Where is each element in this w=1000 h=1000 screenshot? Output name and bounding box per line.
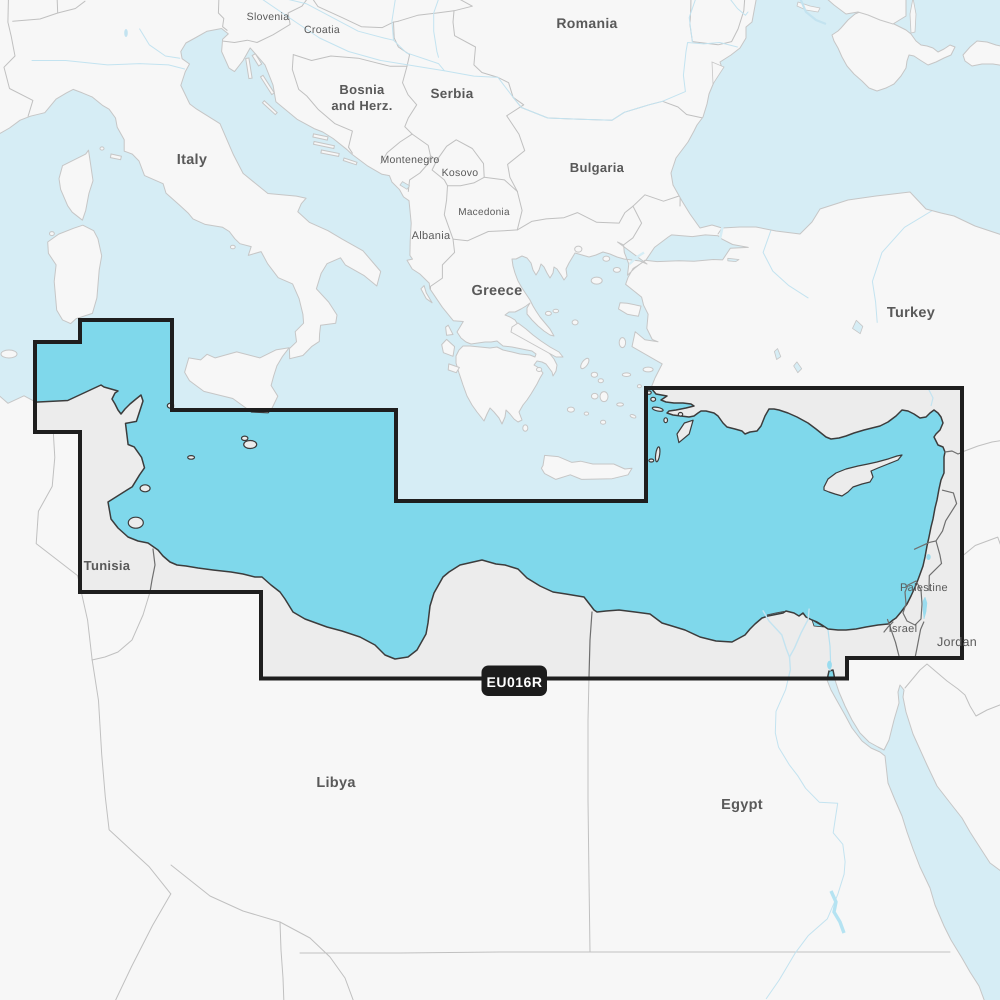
svg-text:Tunisia: Tunisia — [84, 558, 131, 573]
svg-text:Italy: Italy — [177, 152, 208, 168]
svg-text:Slovenia: Slovenia — [247, 11, 290, 23]
svg-text:Albania: Albania — [412, 230, 451, 242]
svg-text:Bosnia: Bosnia — [339, 82, 385, 97]
svg-text:Croatia: Croatia — [304, 24, 340, 36]
svg-text:EU016R: EU016R — [487, 674, 543, 690]
svg-text:Libya: Libya — [316, 775, 356, 791]
svg-text:Kosovo: Kosovo — [442, 167, 479, 179]
svg-text:Palestine: Palestine — [900, 582, 948, 594]
svg-text:Greece: Greece — [472, 283, 523, 299]
svg-text:Bulgaria: Bulgaria — [570, 160, 625, 175]
svg-text:Macedonia: Macedonia — [458, 207, 510, 218]
svg-text:and Herz.: and Herz. — [331, 98, 392, 113]
svg-text:Turkey: Turkey — [887, 305, 935, 321]
svg-text:Montenegro: Montenegro — [380, 154, 439, 166]
svg-text:Israel: Israel — [889, 623, 918, 635]
svg-text:Serbia: Serbia — [430, 86, 473, 101]
svg-text:Romania: Romania — [556, 15, 617, 31]
svg-text:Jordan: Jordan — [937, 635, 977, 649]
svg-text:Egypt: Egypt — [721, 797, 763, 813]
